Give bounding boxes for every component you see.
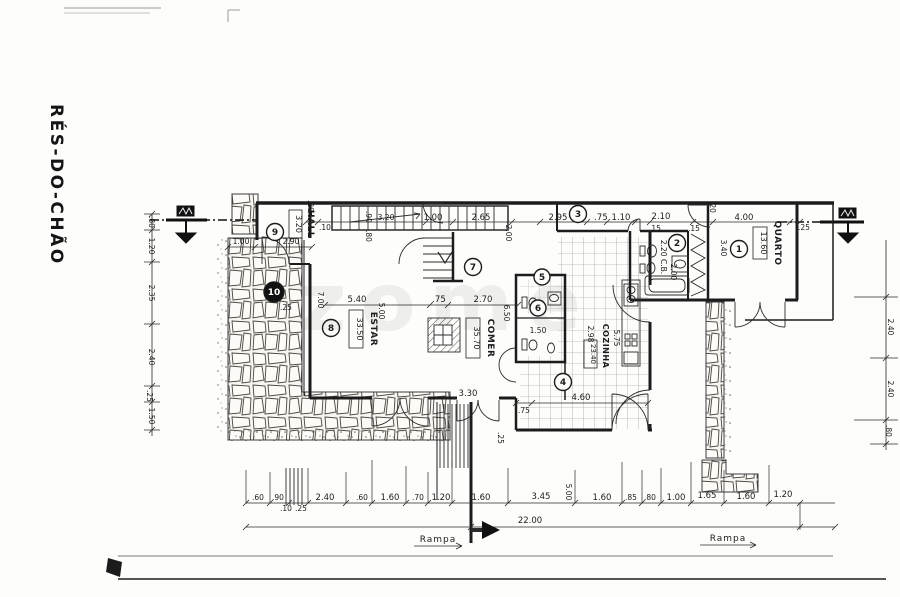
dim-text: 3.30 — [459, 389, 478, 399]
dimension-labels-bottom: .60 .90 .10 .25 2.40 .60 1.60 .70 1.20 1… — [252, 484, 792, 545]
ramp-label: Rampa — [420, 535, 457, 545]
dim-text: 1.60 — [472, 493, 491, 503]
dim-text: .10 — [319, 223, 331, 232]
dim-text: 2.40 — [886, 381, 895, 398]
dim-text: 2.00 — [669, 264, 678, 281]
dim-text: 4.00 — [735, 213, 754, 223]
dim-text: .15 — [649, 224, 661, 233]
dim-text: 2.00 — [504, 225, 513, 242]
dim-text: 1.50 — [530, 326, 547, 335]
dim-text: .25 — [798, 223, 810, 232]
dim-text: 2.40 — [886, 319, 895, 336]
dim-text: 5.75 — [612, 330, 621, 347]
dim-text: .25 — [295, 504, 307, 513]
room-area-quarto: 13.60 — [759, 232, 768, 255]
dim-text: 2.10 — [652, 212, 671, 222]
room-name-hall: HALL — [305, 210, 315, 238]
scanned-floorplan-page: RÉS-DO-CHÃO — [0, 0, 900, 597]
dim-text: 2.95 — [549, 213, 568, 223]
room-name-comer: COMER — [485, 319, 495, 358]
dim-text: .80 — [147, 216, 156, 228]
dim-text: .25 — [145, 390, 154, 402]
dim-text: 1.20 — [432, 493, 451, 503]
dim-text: .80 — [884, 425, 893, 437]
dim-text: .80 — [364, 230, 373, 242]
dim-text: 1.60 — [737, 492, 756, 502]
dim-text: 1.00 — [667, 493, 686, 503]
dim-text: .60 — [252, 493, 264, 502]
dim-text: .20 — [708, 201, 717, 213]
dim-text: .10 — [280, 504, 292, 513]
dim-text: 1.10 — [612, 213, 631, 223]
dim-text: 3.20 — [378, 213, 395, 222]
dim-text: .90 — [272, 493, 284, 502]
stairs — [286, 206, 508, 505]
dim-text: 2.70 — [474, 295, 493, 305]
marker-number: 9 — [272, 228, 278, 238]
floorplan-drawing: zome — [0, 0, 900, 597]
dim-text: 1.60 — [381, 493, 400, 503]
dim-text: .25 — [496, 432, 505, 444]
dim-text: 1.20 — [774, 490, 793, 500]
dim-text: 3.45 — [532, 492, 551, 502]
dim-text: .15 — [688, 224, 700, 233]
dim-text: 5.40 — [348, 295, 367, 305]
dim-text: 2.35 — [147, 285, 156, 302]
dim-text-total: 22.00 — [518, 516, 542, 526]
dim-text: 2.65 — [472, 213, 491, 223]
dim-text: 1.20 — [147, 238, 156, 255]
room-name-quarto: QUARTO — [772, 221, 782, 266]
dim-text: 3.40 — [719, 240, 728, 257]
dim-text: 1.60 — [593, 493, 612, 503]
dim-text: 7.00 — [316, 292, 325, 309]
dimension-labels-left: .80 1.20 2.35 2.40 .25 1.50 — [145, 216, 156, 425]
marker-number: 8 — [328, 324, 334, 334]
dim-text: .75 — [594, 213, 608, 223]
dim-text: 2.40 — [147, 349, 156, 366]
dim-text: 4.60 — [572, 393, 591, 403]
dim-text: .75 — [518, 406, 530, 415]
dim-text: .90 — [364, 211, 373, 223]
dim-text: 1.00 — [233, 237, 250, 246]
dim-text: .60 — [356, 493, 368, 502]
marker-number: 2 — [674, 239, 680, 249]
marker-number: 7 — [470, 263, 476, 273]
dim-text: .70 — [412, 493, 424, 502]
dim-text: 1.65 — [698, 491, 717, 501]
room-area-cozinha: 23.40 — [589, 344, 597, 364]
closet-zigzag — [691, 234, 705, 296]
marker-number: 10 — [268, 288, 281, 298]
dim-text: 1.00 — [424, 213, 443, 223]
room-name-estar: ESTAR — [368, 312, 378, 346]
dim-text: 5.00 — [564, 484, 573, 501]
marker-number: 5 — [539, 273, 545, 283]
dim-text: .25 — [280, 303, 292, 312]
dim-text: 2.40 — [316, 493, 335, 503]
marker-number: 1 — [736, 245, 742, 255]
marker-number: 3 — [575, 210, 581, 220]
marker-number: 6 — [535, 304, 541, 314]
room-area-estar: 33.50 — [355, 318, 364, 341]
dim-text: .80 — [644, 493, 656, 502]
room-area-hall: 3.20 — [294, 215, 303, 233]
dim-text: 1.50 — [147, 408, 156, 425]
room-name-cozinha: COZINHA — [601, 324, 610, 369]
dim-text: 6.50 — [502, 305, 511, 322]
room-area-comer: 35.70 — [472, 327, 481, 350]
ramp-label: Rampa — [710, 534, 747, 544]
dim-text: .75 — [432, 295, 446, 305]
dim-text: .85 — [625, 493, 637, 502]
bath-label: 2.20 C.B. — [659, 240, 668, 274]
marker-number: 4 — [560, 378, 566, 388]
